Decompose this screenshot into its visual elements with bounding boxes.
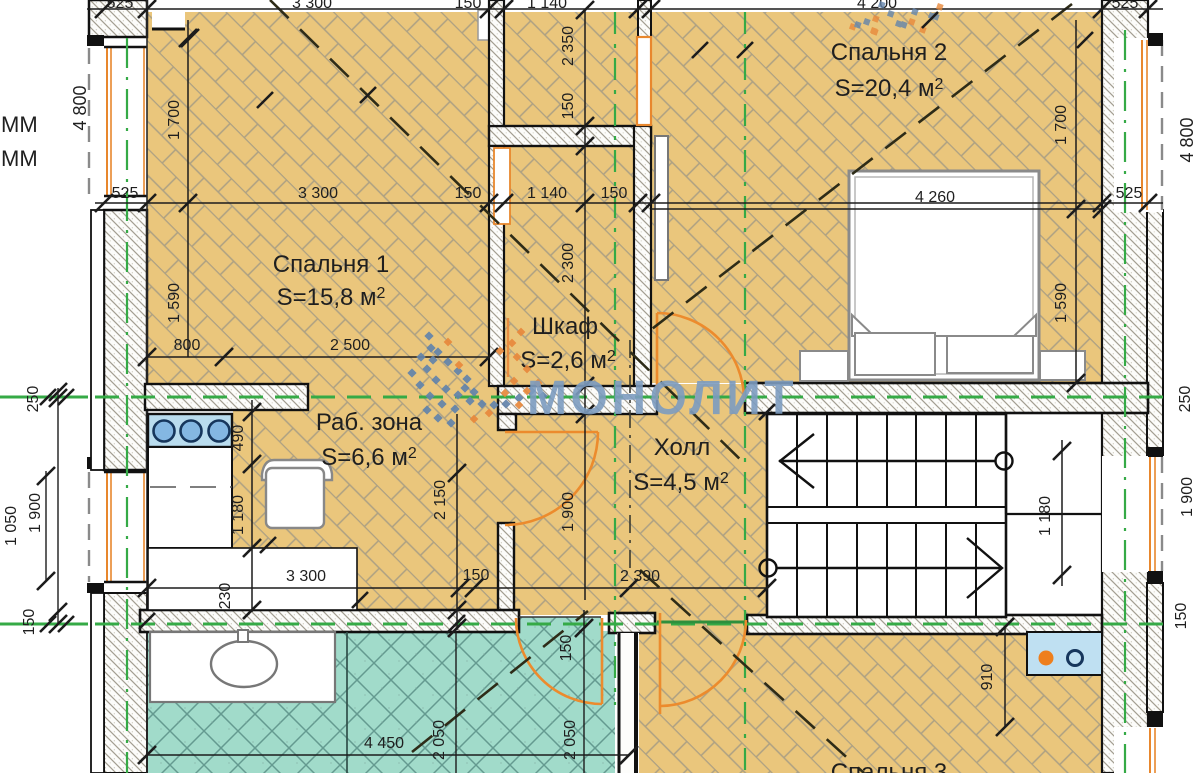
svg-text:1 140: 1 140 [527, 185, 567, 202]
svg-text:150: 150 [21, 609, 38, 636]
svg-text:1 900: 1 900 [1179, 477, 1196, 517]
svg-text:Холл: Холл [654, 434, 711, 461]
svg-text:S=15,8 м2: S=15,8 м2 [277, 284, 386, 311]
svg-text:4 260: 4 260 [915, 189, 955, 206]
svg-text:525: 525 [1112, 0, 1139, 12]
svg-text:910: 910 [979, 664, 996, 691]
svg-text:150: 150 [455, 185, 482, 202]
svg-text:Шкаф: Шкаф [532, 313, 598, 340]
svg-text:800: 800 [174, 337, 201, 354]
svg-text:3 300: 3 300 [286, 568, 326, 585]
svg-text:2 300: 2 300 [560, 243, 577, 283]
svg-text:150: 150 [560, 93, 577, 120]
svg-text:1 700: 1 700 [1053, 105, 1070, 145]
svg-text:3 300: 3 300 [292, 0, 332, 12]
svg-text:2 500: 2 500 [330, 337, 370, 354]
svg-text:Спальня 2: Спальня 2 [831, 39, 947, 66]
svg-text:4 200: 4 200 [857, 0, 897, 12]
svg-text:150: 150 [601, 185, 628, 202]
svg-text:1 700: 1 700 [166, 100, 183, 140]
svg-text:Спальня 3: Спальня 3 [831, 759, 947, 773]
svg-text:1 590: 1 590 [166, 283, 183, 323]
svg-text:Спальня 1: Спальня 1 [273, 251, 389, 278]
svg-text:2 050: 2 050 [431, 720, 448, 760]
svg-text:490: 490 [230, 425, 247, 452]
svg-text:1 050: 1 050 [3, 506, 20, 546]
svg-text:250: 250 [25, 386, 42, 413]
svg-text:150: 150 [558, 635, 575, 662]
svg-text:3 300: 3 300 [298, 185, 338, 202]
svg-text:S=20,4 м2: S=20,4 м2 [835, 75, 944, 102]
svg-text:525: 525 [112, 185, 139, 202]
svg-text:2 150: 2 150 [432, 480, 449, 520]
svg-text:2 050: 2 050 [562, 720, 579, 760]
svg-text:525: 525 [107, 0, 134, 12]
svg-text:525: 525 [1116, 185, 1143, 202]
svg-text:2 390: 2 390 [620, 568, 660, 585]
svg-text:S=6,6 м2: S=6,6 м2 [321, 444, 417, 471]
svg-text:150: 150 [455, 0, 482, 12]
svg-text:250: 250 [1177, 386, 1194, 413]
svg-text:S=2,6 м2: S=2,6 м2 [520, 347, 616, 374]
svg-text:4 800: 4 800 [1177, 117, 1197, 162]
svg-text:1 180: 1 180 [1037, 496, 1054, 536]
svg-text:ММ: ММ [1, 146, 38, 171]
svg-text:2 350: 2 350 [560, 26, 577, 66]
svg-text:S=4,5 м2: S=4,5 м2 [633, 469, 729, 496]
svg-text:Раб. зона: Раб. зона [316, 409, 423, 436]
svg-text:4 800: 4 800 [70, 85, 90, 130]
svg-text:1 140: 1 140 [527, 0, 567, 12]
svg-text:230: 230 [217, 583, 234, 610]
svg-text:1 900: 1 900 [27, 493, 44, 533]
svg-text:1 900: 1 900 [560, 492, 577, 532]
svg-text:1 590: 1 590 [1053, 283, 1070, 323]
svg-text:150: 150 [1173, 603, 1190, 630]
svg-text:150: 150 [463, 567, 490, 584]
svg-text:МОНОЛИТ: МОНОЛИТ [527, 372, 797, 425]
svg-text:4 450: 4 450 [364, 735, 404, 752]
svg-text:1 180: 1 180 [230, 495, 247, 535]
svg-text:ММ: ММ [1, 112, 38, 137]
